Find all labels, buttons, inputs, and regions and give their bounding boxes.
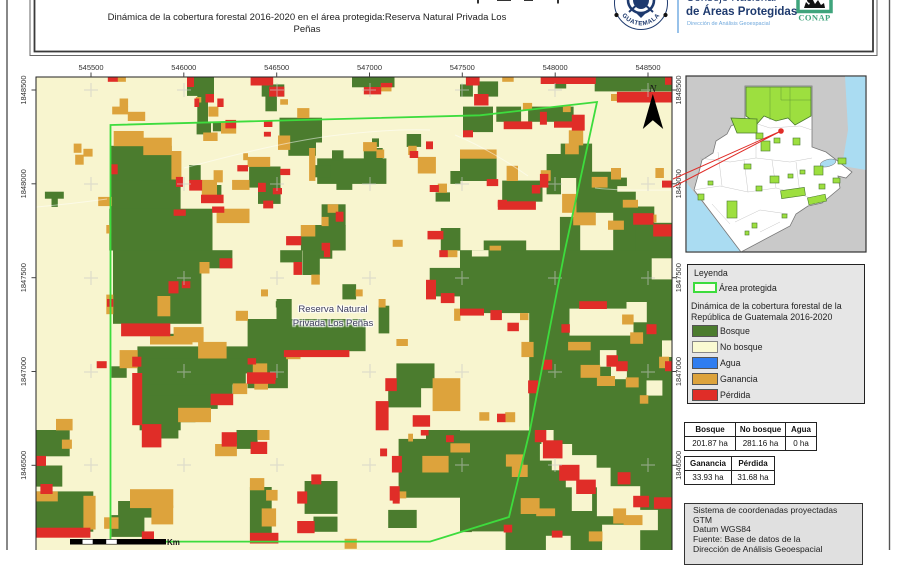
svg-text:1847000: 1847000 [19, 357, 28, 386]
svg-text:1847000: 1847000 [674, 357, 683, 386]
svg-text:547000: 547000 [357, 63, 382, 72]
svg-text:1848500: 1848500 [19, 75, 28, 104]
svg-text:N: N [648, 83, 657, 95]
svg-text:546000: 546000 [171, 63, 196, 72]
svg-text:1846500: 1846500 [674, 451, 683, 480]
svg-text:Km: Km [167, 538, 180, 547]
svg-text:547500: 547500 [450, 63, 475, 72]
svg-text:548000: 548000 [543, 63, 568, 72]
svg-text:1848000: 1848000 [19, 169, 28, 198]
svg-text:546500: 546500 [264, 63, 289, 72]
svg-text:1847500: 1847500 [19, 263, 28, 292]
svg-text:545500: 545500 [78, 63, 103, 72]
svg-text:548500: 548500 [635, 63, 660, 72]
svg-text:1847500: 1847500 [674, 263, 683, 292]
svg-text:1848500: 1848500 [674, 75, 683, 104]
svg-text:1846500: 1846500 [19, 451, 28, 480]
